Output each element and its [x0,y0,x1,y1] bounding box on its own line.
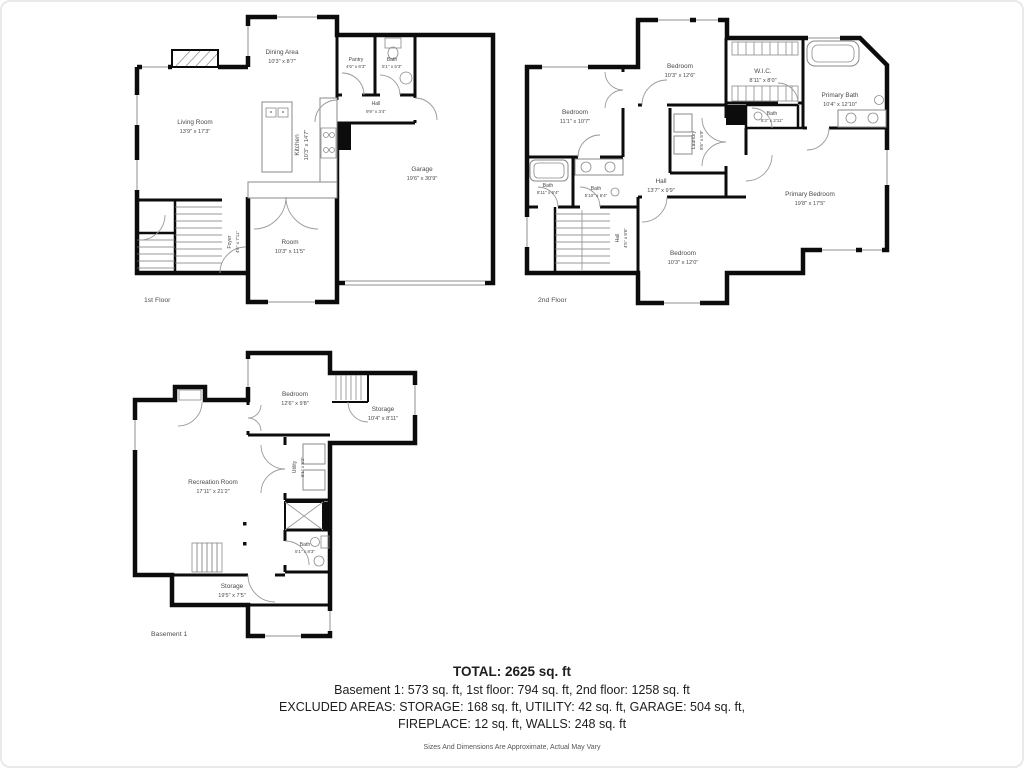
vanity [575,159,623,175]
room-dims: 5'1" x 8'2" [300,457,305,477]
room-dims: 13'9" x 17'3" [180,129,211,135]
stairs [555,210,610,270]
kitchen-fixtures [248,98,337,198]
room-label: Room [281,239,298,246]
room-label: Pantry [349,57,364,63]
room-label: W.I.C. [754,68,772,75]
kitchen-island [262,102,292,172]
room-label: Bath [543,183,554,189]
total-area: TOTAL: 2625 sq. ft [0,664,1024,679]
room-dims: 10'3" x 14'7" [304,130,310,161]
room-dims: 5'10" x 6'4" [585,193,608,198]
appliance [303,444,325,464]
room-dims: 19'5" x 7'5" [218,593,246,599]
room-label: Dining Area [265,49,298,56]
fireplace [179,390,201,400]
chimney-block [337,123,351,150]
room-label: Bath [591,186,602,192]
floor-name: 2nd Floor [538,297,567,304]
room-dims: 10'3" x 11'5" [275,249,305,255]
room-label: Foyer [227,235,233,248]
dryer [674,136,692,154]
room-label: Primary Bath [822,92,859,99]
room-label: Garage [411,166,433,173]
room-dims: 4'6" x 6'3" [346,64,366,69]
toilet [875,96,884,105]
sink [314,556,324,566]
floorplan-page: Dining Area 10'3" x 8'7" Pantry 4'6" x 6… [0,0,1024,768]
excluded-areas-1: EXCLUDED AREAS: STORAGE: 168 sq. ft, UTI… [0,699,1024,716]
stairs [192,543,222,572]
room-label: Storage [221,583,244,590]
fireplace [172,50,218,67]
room-dims: 19'8" x 17'5" [795,201,826,207]
room-labels: Bedroom 10'3" x 12'6" Bedroom 11'1" x 10… [537,63,859,304]
room-label: Bedroom [670,250,696,257]
room-dims: 5'1" x 8'3" [295,549,315,554]
stairs [137,207,222,268]
second-floor-plan: Bedroom 10'3" x 12'6" Bedroom 11'1" x 10… [520,10,900,310]
room-dims: 19'6" x 30'9" [407,176,438,182]
appliance [303,470,325,490]
floor-name: 1st Floor [144,297,171,304]
toilet [611,188,619,196]
room-label: Bath [300,542,311,548]
area-summary: TOTAL: 2625 sq. ft Basement 1: 573 sq. f… [0,664,1024,751]
room-dims: 4'6" x 7'11" [235,230,240,253]
room-dims: 13'7" x 9'9" [647,188,675,194]
room-labels: Bedroom 12'6" x 9'8" Storage 10'4" x 8'1… [151,391,398,638]
room-label: Bath [387,57,398,63]
basement-floor-plan: Bedroom 12'6" x 9'8" Storage 10'4" x 8'1… [125,345,435,645]
room-label: Hall [615,234,621,243]
closet-rod [732,86,798,101]
room-dims: 8'11" x 8'0" [749,78,776,84]
room-label: Storage [372,406,395,413]
room-dims: 10'3" x 12'6" [665,73,696,79]
room-dims: 8'11" x 6'4" [537,190,560,195]
room-dims: 8'6" x 5'9" [699,130,704,150]
walls [135,353,415,636]
toilet [311,538,320,547]
chimney-block [726,105,746,125]
room-label: Kitchen [294,134,301,156]
room-dims: 10'4" x 8'11" [368,416,398,422]
room-dims: 5'1" x 5'3" [382,64,402,69]
closet-rod [732,42,798,55]
room-labels: Dining Area 10'3" x 8'7" Pantry 4'6" x 6… [144,49,437,304]
chimney-block [323,502,330,530]
room-dims: 9'9" x 3'4" [366,109,386,114]
room-label: Laundry [691,130,697,149]
room-dims: 12'6" x 9'8" [281,401,309,407]
floor-name: Basement 1 [151,631,187,638]
room-label: Hall [372,101,381,107]
disclaimer: Sizes And Dimensions Are Approximate, Ac… [0,744,1024,751]
first-floor-plan: Dining Area 10'3" x 8'7" Pantry 4'6" x 6… [130,10,510,310]
room-dims: 11'1" x 10'7" [560,119,590,125]
room-dims: 17'11" x 21'2" [196,489,229,495]
walls [137,17,493,302]
room-label: Bath [767,111,778,117]
room-dims: 10'3" x 8'7" [268,59,296,65]
room-label: Primary Bedroom [785,191,835,198]
room-label: Bedroom [667,63,693,70]
washer [674,114,692,132]
room-dims: 10'4" x 12'10" [823,102,857,108]
room-dims: 4'5" x 8'6" [623,228,628,248]
room-dims: 6'3" x 2'11" [761,118,784,123]
room-label: Utility [292,460,298,473]
room-label: Hall [655,178,666,185]
room-label: Recreation Room [188,479,238,486]
excluded-areas-2: FIREPLACE: 12 sq. ft, WALLS: 248 sq. ft [0,716,1024,733]
room-label: Bedroom [562,109,588,116]
room-label: Living Room [177,119,213,126]
room-label: Bedroom [282,391,308,398]
floor-areas: Basement 1: 573 sq. ft, 1st floor: 794 s… [0,682,1024,699]
room-dims: 10'3" x 12'0" [668,260,699,266]
vanity [838,110,886,127]
toilet-tank [385,38,401,48]
sink [400,72,412,84]
